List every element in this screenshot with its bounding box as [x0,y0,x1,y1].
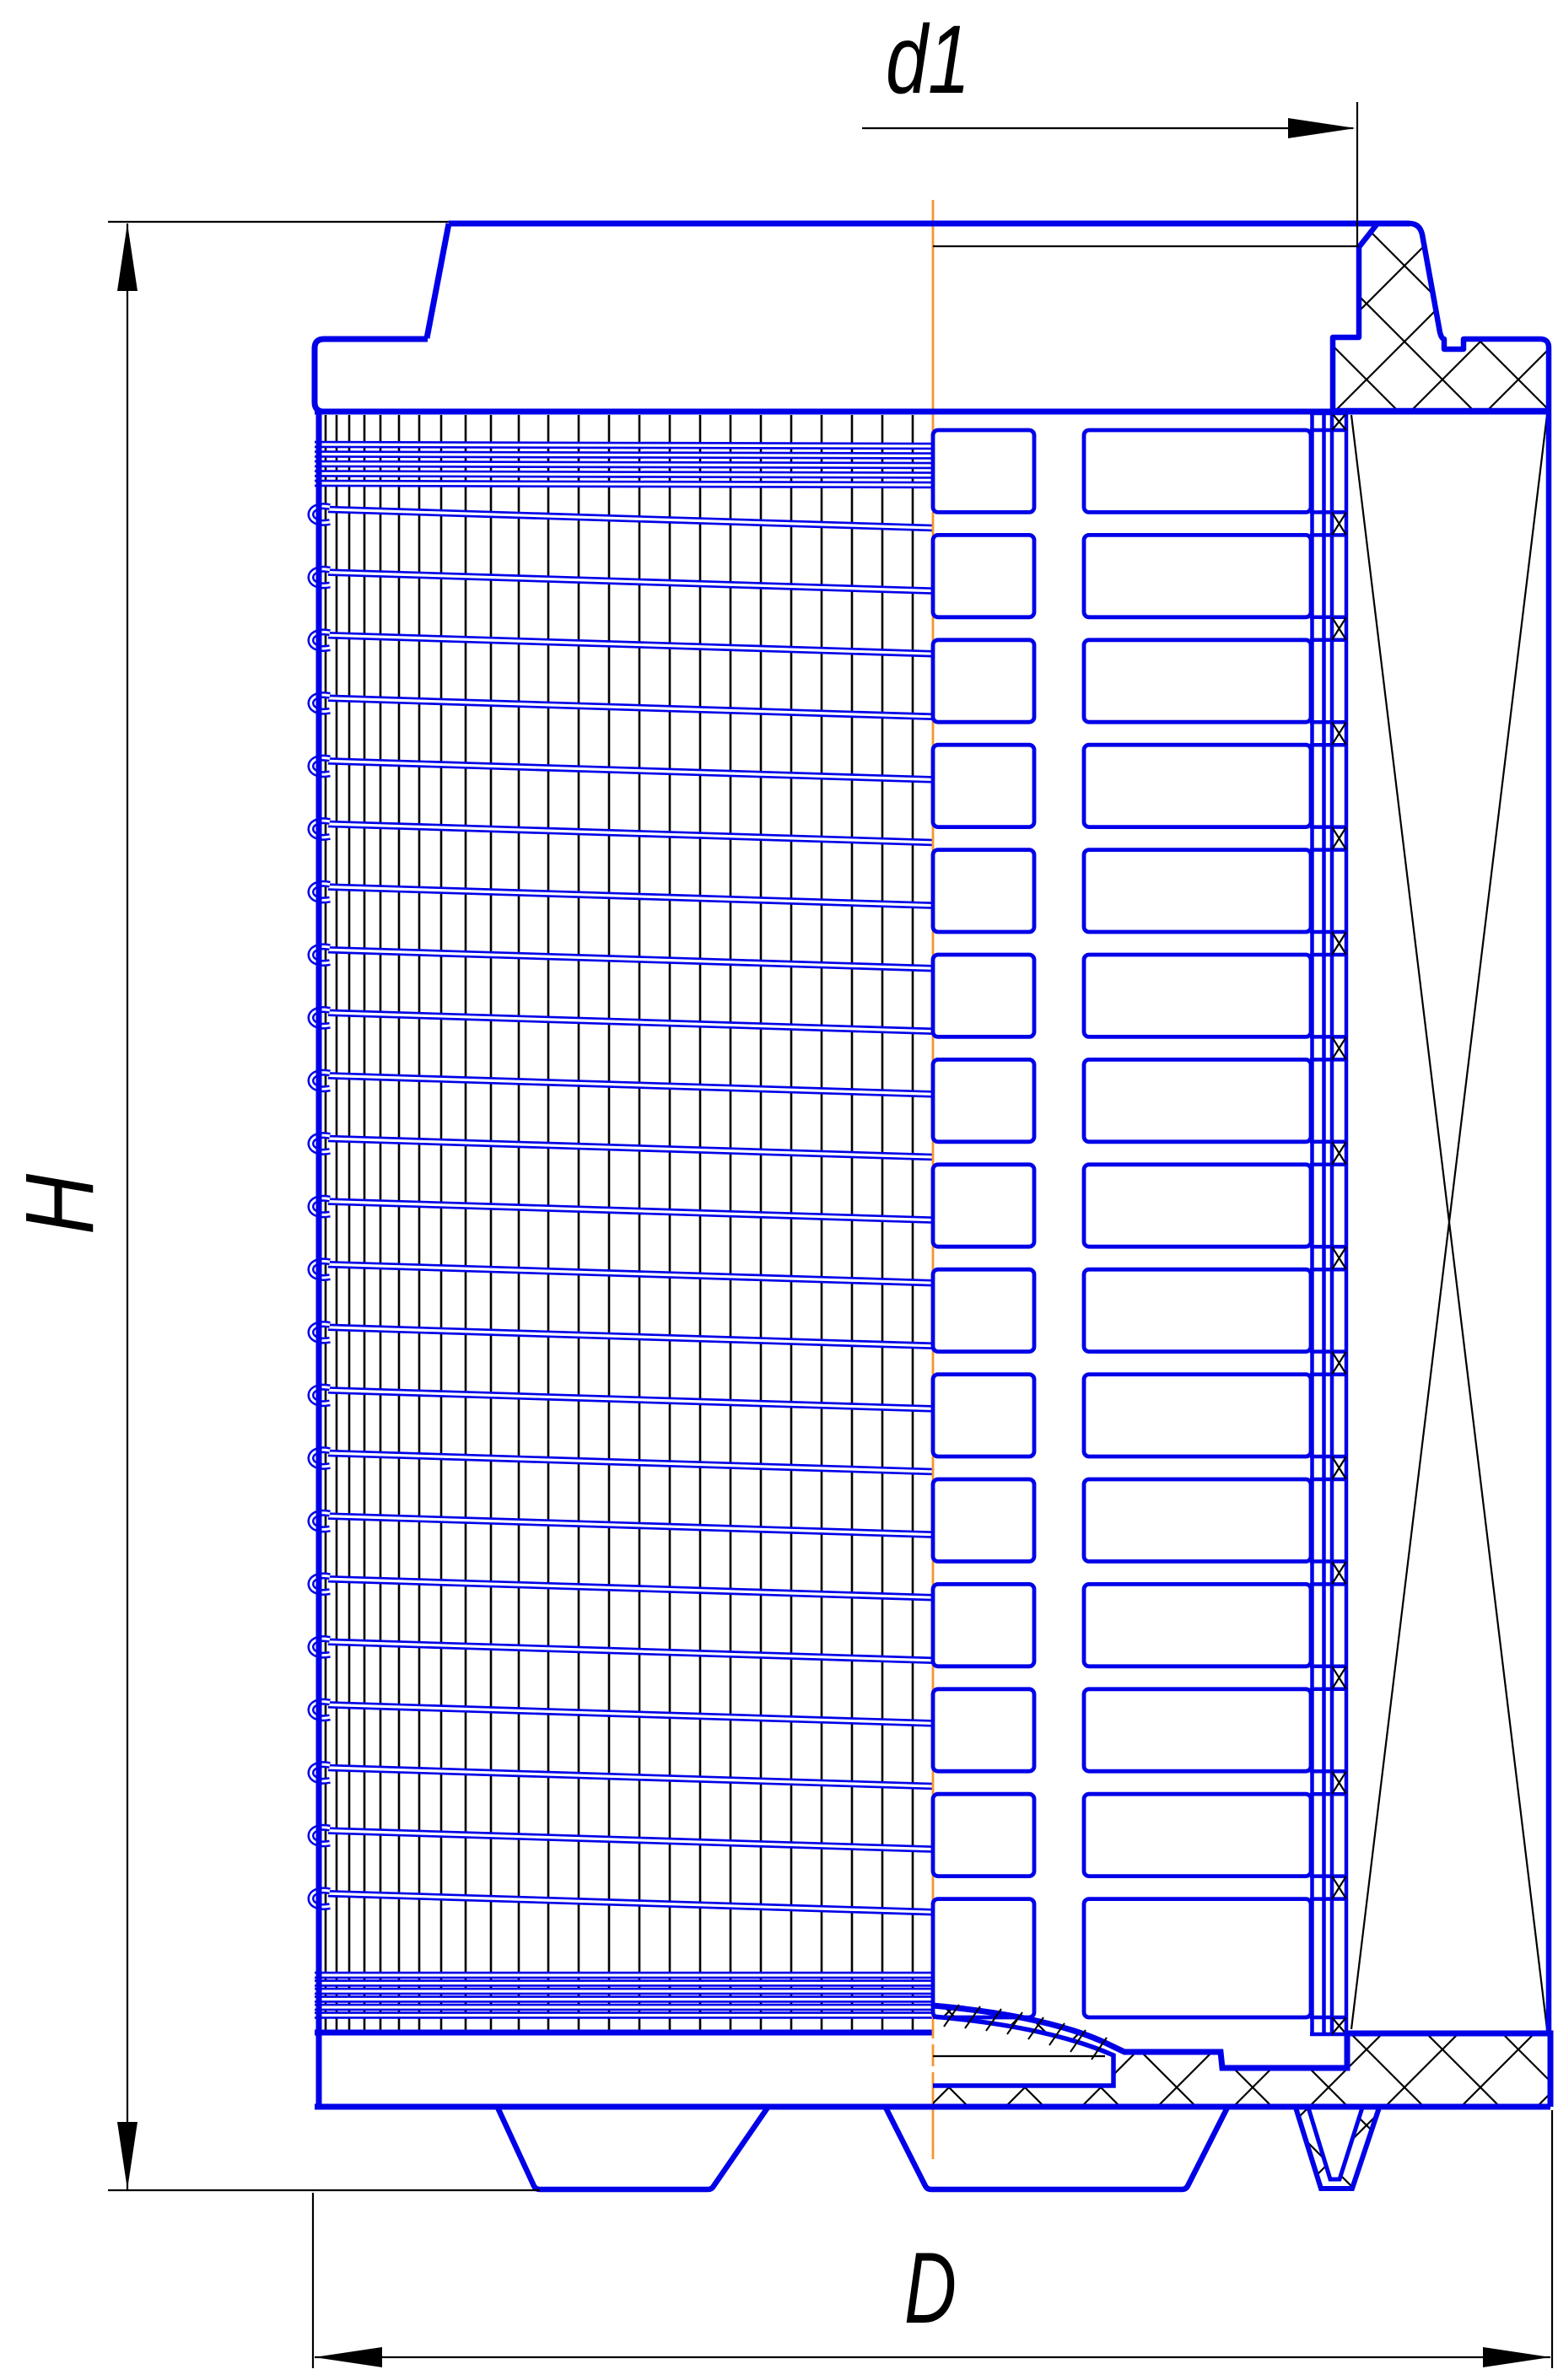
svg-text:D: D [904,2232,957,2345]
svg-text:H: H [6,1173,114,1235]
svg-text:d1: d1 [886,6,970,114]
